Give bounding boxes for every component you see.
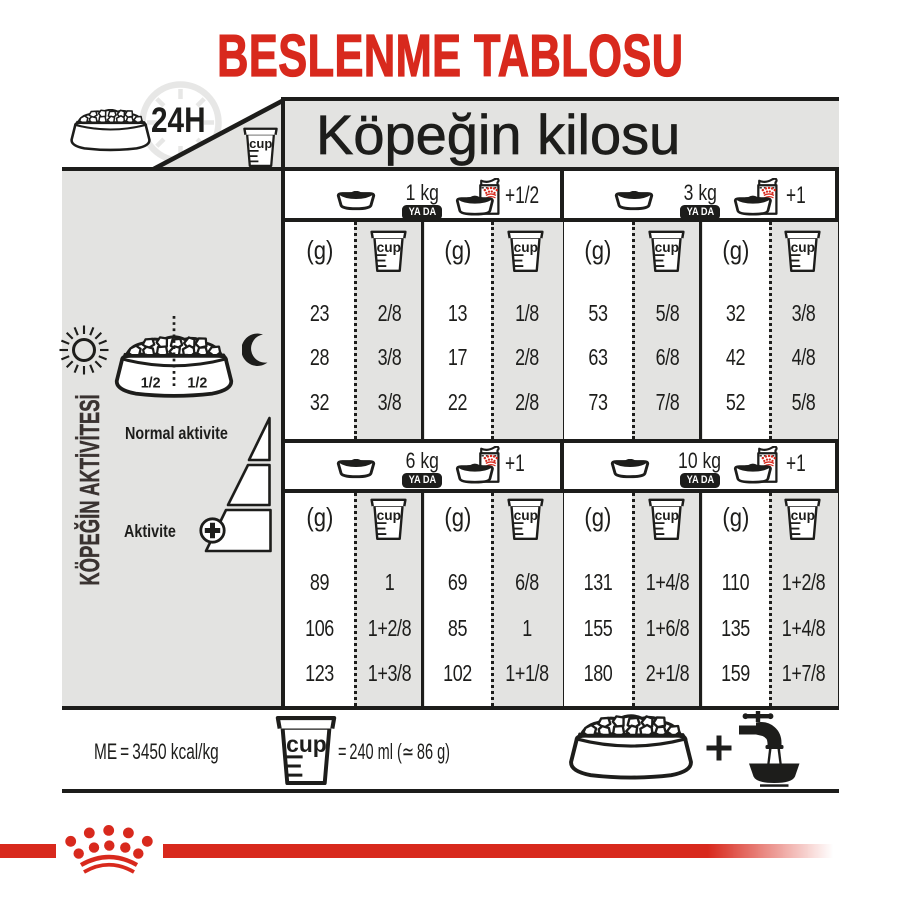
svg-text:1/2: 1/2 — [187, 376, 207, 392]
svg-text:1/2: 1/2 — [141, 376, 161, 392]
